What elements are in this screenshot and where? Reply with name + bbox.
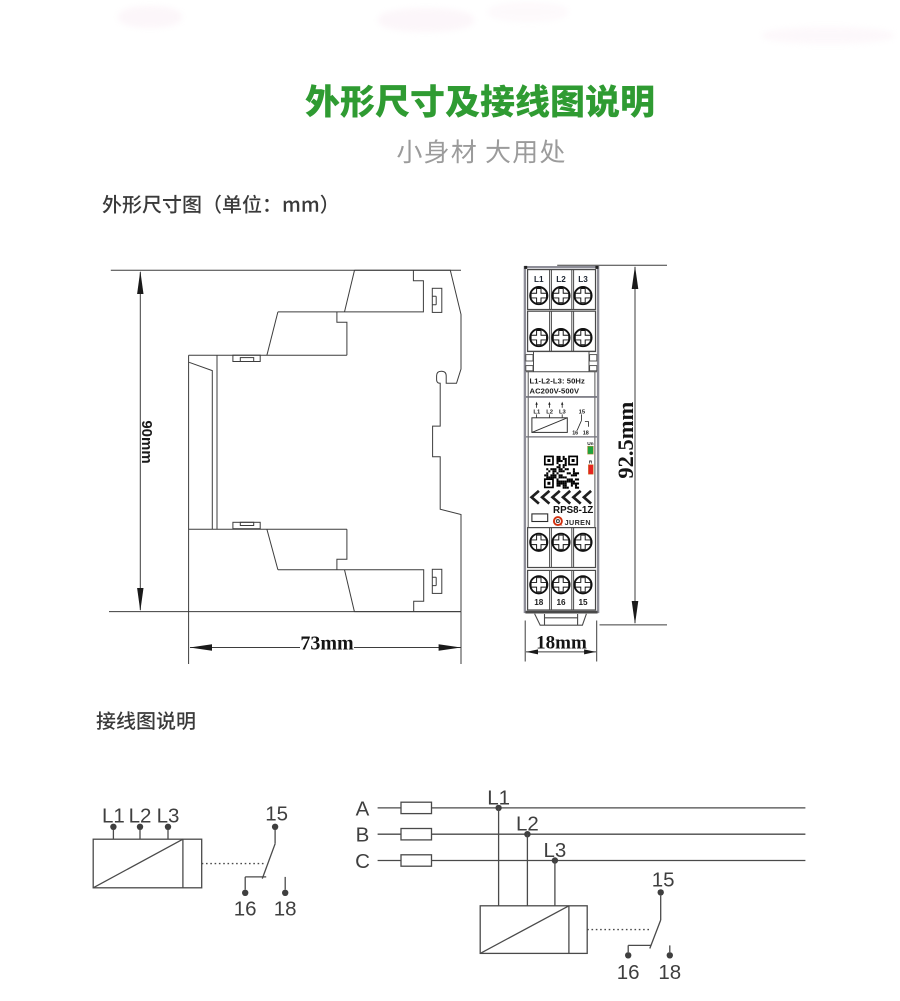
svg-text:73mm: 73mm: [300, 632, 354, 654]
svg-text:18mm: 18mm: [536, 632, 587, 653]
svg-text:15: 15: [652, 868, 675, 891]
svg-text:A: A: [356, 797, 370, 820]
svg-text:Un: Un: [587, 441, 593, 447]
svg-text:18: 18: [583, 431, 589, 437]
svg-text:JUREN: JUREN: [565, 518, 591, 527]
svg-text:18: 18: [534, 598, 544, 607]
svg-text:C: C: [355, 850, 370, 873]
svg-text:L1: L1: [534, 275, 544, 284]
svg-text:L3: L3: [578, 275, 588, 284]
svg-text:AC200V-500V: AC200V-500V: [530, 386, 580, 395]
svg-text:B: B: [356, 824, 370, 847]
svg-text:16: 16: [556, 598, 566, 607]
svg-text:16: 16: [234, 897, 257, 920]
svg-text:18: 18: [274, 897, 297, 920]
svg-text:L2: L2: [556, 275, 566, 284]
svg-text:L1-L2-L3: 50Hz: L1-L2-L3: 50Hz: [530, 377, 586, 386]
svg-text:15: 15: [579, 409, 586, 415]
svg-text:L1: L1: [533, 409, 541, 415]
svg-text:15: 15: [578, 598, 588, 607]
svg-text:92.5mm: 92.5mm: [613, 402, 638, 479]
svg-text:L3: L3: [559, 409, 567, 415]
svg-text:16: 16: [572, 431, 578, 437]
svg-text:15: 15: [265, 803, 288, 826]
svg-text:18: 18: [658, 961, 681, 984]
svg-text:16: 16: [617, 961, 640, 984]
svg-text:90mm: 90mm: [138, 420, 155, 463]
svg-text:RPS8-1Z: RPS8-1Z: [553, 505, 593, 516]
